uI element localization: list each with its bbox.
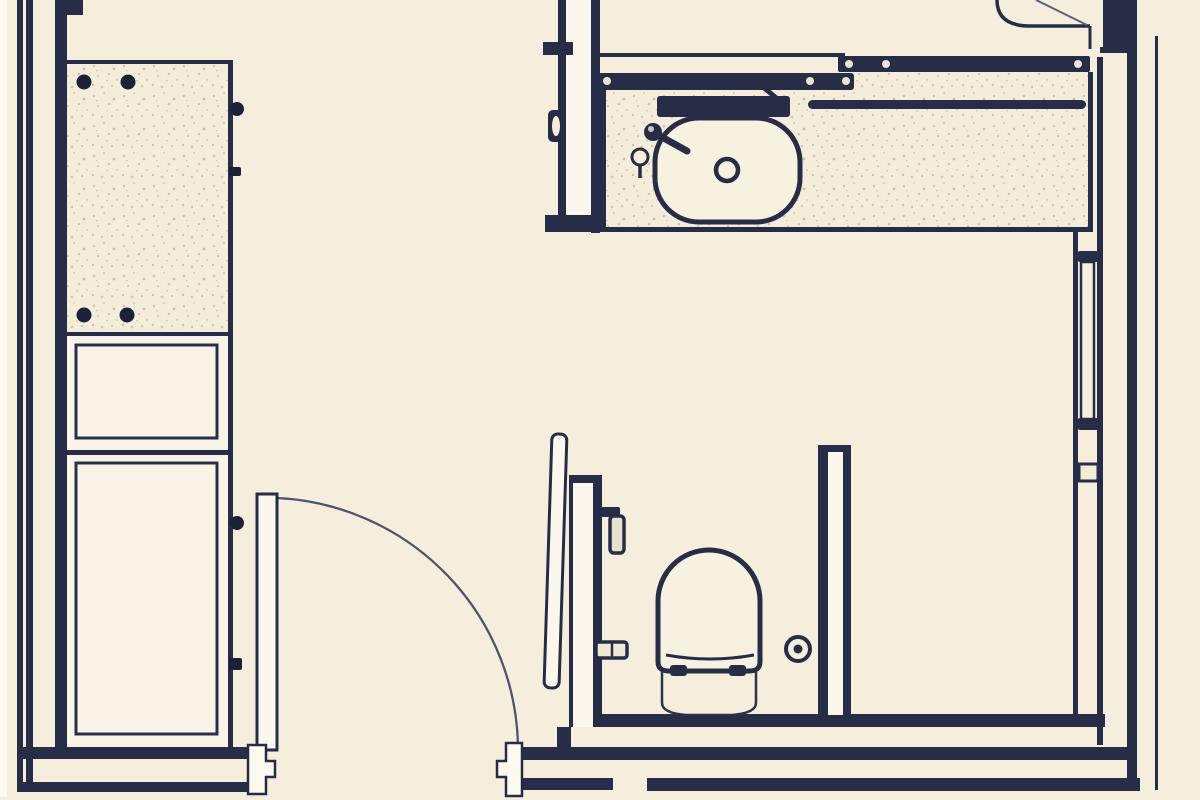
cabinet-shelf-line <box>67 332 228 336</box>
partition-right-cap <box>818 445 851 452</box>
end-panel-foot <box>545 215 600 232</box>
faucet-highlight <box>648 126 654 132</box>
left-wall-thick <box>55 0 67 758</box>
partition-right-line-a <box>818 445 828 715</box>
counter-shelf <box>657 96 790 117</box>
cabinet-divider <box>67 450 228 455</box>
seat-hinge-right <box>729 665 746 676</box>
left-wall-top-tab <box>67 0 83 15</box>
partition-right-line-b <box>843 445 851 715</box>
left-wall-outer-line <box>17 0 23 786</box>
towel-rail <box>808 100 1086 109</box>
partition-left-core <box>573 480 593 727</box>
right-wall-outer <box>1127 0 1137 791</box>
rail-cap-top <box>1078 251 1098 262</box>
partition-left-line-a <box>569 475 573 727</box>
right-wall-inner-line <box>1097 57 1103 745</box>
left-wall-inner-line <box>26 0 33 786</box>
drain-center <box>794 645 803 654</box>
bottom-wall-outer-line-b <box>647 778 1140 791</box>
right-wall-top <box>1103 0 1127 53</box>
screen-bar-lower <box>598 73 854 90</box>
popup-knob <box>632 149 648 165</box>
wc-partition-right <box>818 445 851 715</box>
toilet-seat <box>658 550 760 671</box>
counter-right-edge <box>1088 72 1093 232</box>
counter-left-edge <box>600 88 606 232</box>
partition-right-core <box>828 452 843 715</box>
bathroom-floor-plan <box>0 0 1200 800</box>
end-panel-right-edge <box>591 0 600 233</box>
door-leaf <box>257 494 277 750</box>
counter-front-edge <box>600 227 1093 232</box>
bottom-wall-left-outer-line <box>17 782 248 792</box>
partition-left-cap <box>569 475 602 483</box>
rail-cap-bottom <box>1078 418 1098 430</box>
bottom-wall-left <box>17 747 248 759</box>
panel-hinge-pin <box>552 116 560 136</box>
right-facade-line <box>1155 36 1158 790</box>
cabinet-stipple-top <box>67 64 228 332</box>
rail-body <box>1081 262 1094 419</box>
roll-holder <box>610 516 624 553</box>
seat-hinge-left <box>670 665 687 676</box>
bottom-wall-right <box>523 747 1135 760</box>
screen-thin-rail <box>596 53 845 57</box>
cabinet-top-edge <box>67 60 233 64</box>
cabinet-right-edge <box>228 60 233 747</box>
partition-left-line-b <box>593 475 602 727</box>
partition-left-foot <box>557 727 571 760</box>
cabinet-door-front <box>67 455 228 747</box>
basin-drain <box>716 159 738 181</box>
bottom-wall-outer-line-a <box>508 778 613 790</box>
wall-bracket <box>1079 464 1098 481</box>
shower-glass-line <box>1073 230 1078 715</box>
left-margin-strip <box>0 0 7 797</box>
end-panel-bracket <box>543 42 573 55</box>
tall-cabinet <box>67 60 244 747</box>
wc-floor-wall <box>574 714 1105 727</box>
cabinet-drawer-front <box>67 336 228 450</box>
floor-plan-canvas <box>0 0 1200 800</box>
screen-bar-upper <box>838 56 1090 72</box>
end-panel-core <box>565 0 592 228</box>
